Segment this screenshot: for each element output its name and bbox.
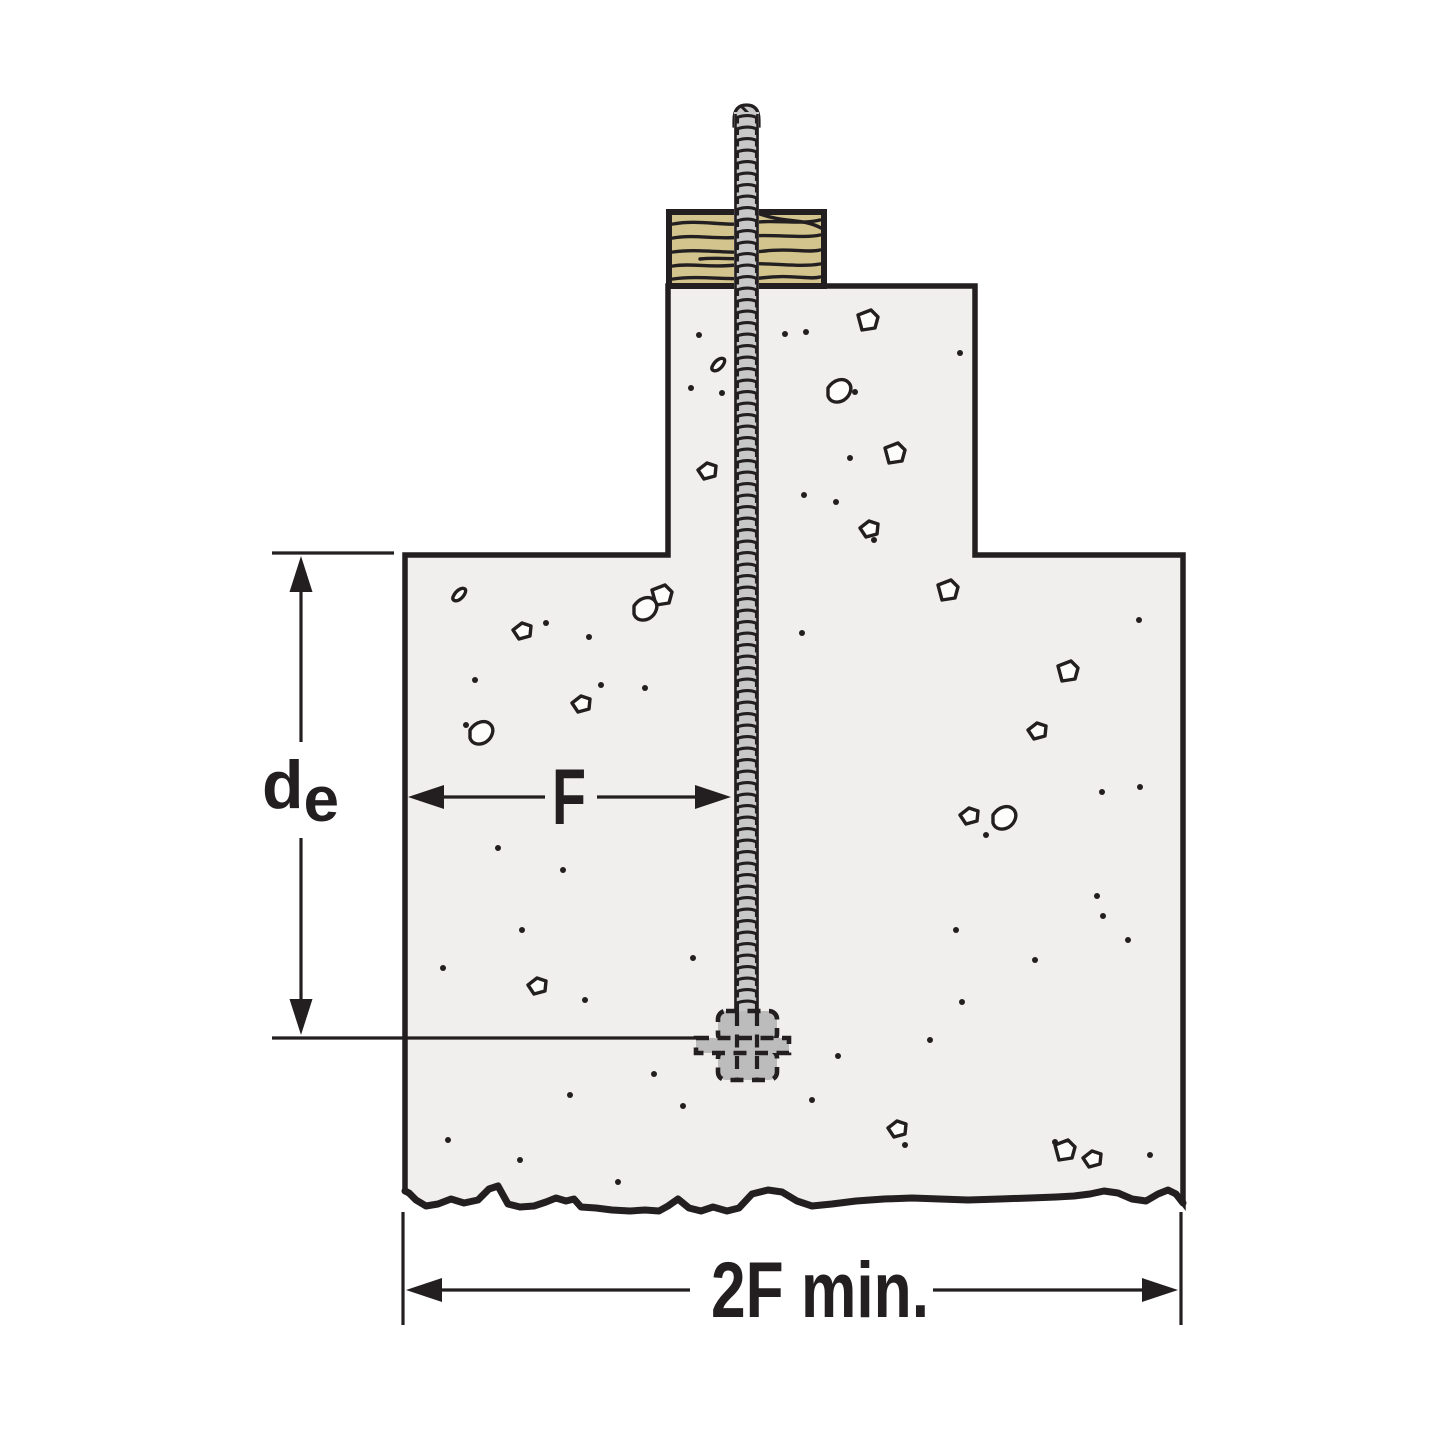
anchor-embedment-diagram: de F 2F min.	[0, 0, 1445, 1445]
2f-arrow-right	[1142, 1278, 1178, 1302]
2f-min-label: 2F min.	[711, 1245, 929, 1334]
de-label: de	[262, 747, 339, 835]
anchor-embedment-figure: de F 2F min.	[0, 0, 1445, 1445]
concrete-outline	[405, 286, 1183, 1211]
f-label: F	[552, 752, 586, 841]
concrete-foundation	[405, 286, 1183, 1211]
de-arrow-up	[290, 556, 313, 592]
washer	[696, 1038, 789, 1053]
de-arrow-down	[290, 999, 313, 1035]
nut-lower	[718, 1050, 777, 1080]
anchor-rod	[734, 105, 759, 1012]
dim-footing-width: 2F min.	[403, 1212, 1181, 1334]
2f-arrow-left	[406, 1278, 442, 1302]
rod-threads	[734, 112, 759, 1012]
